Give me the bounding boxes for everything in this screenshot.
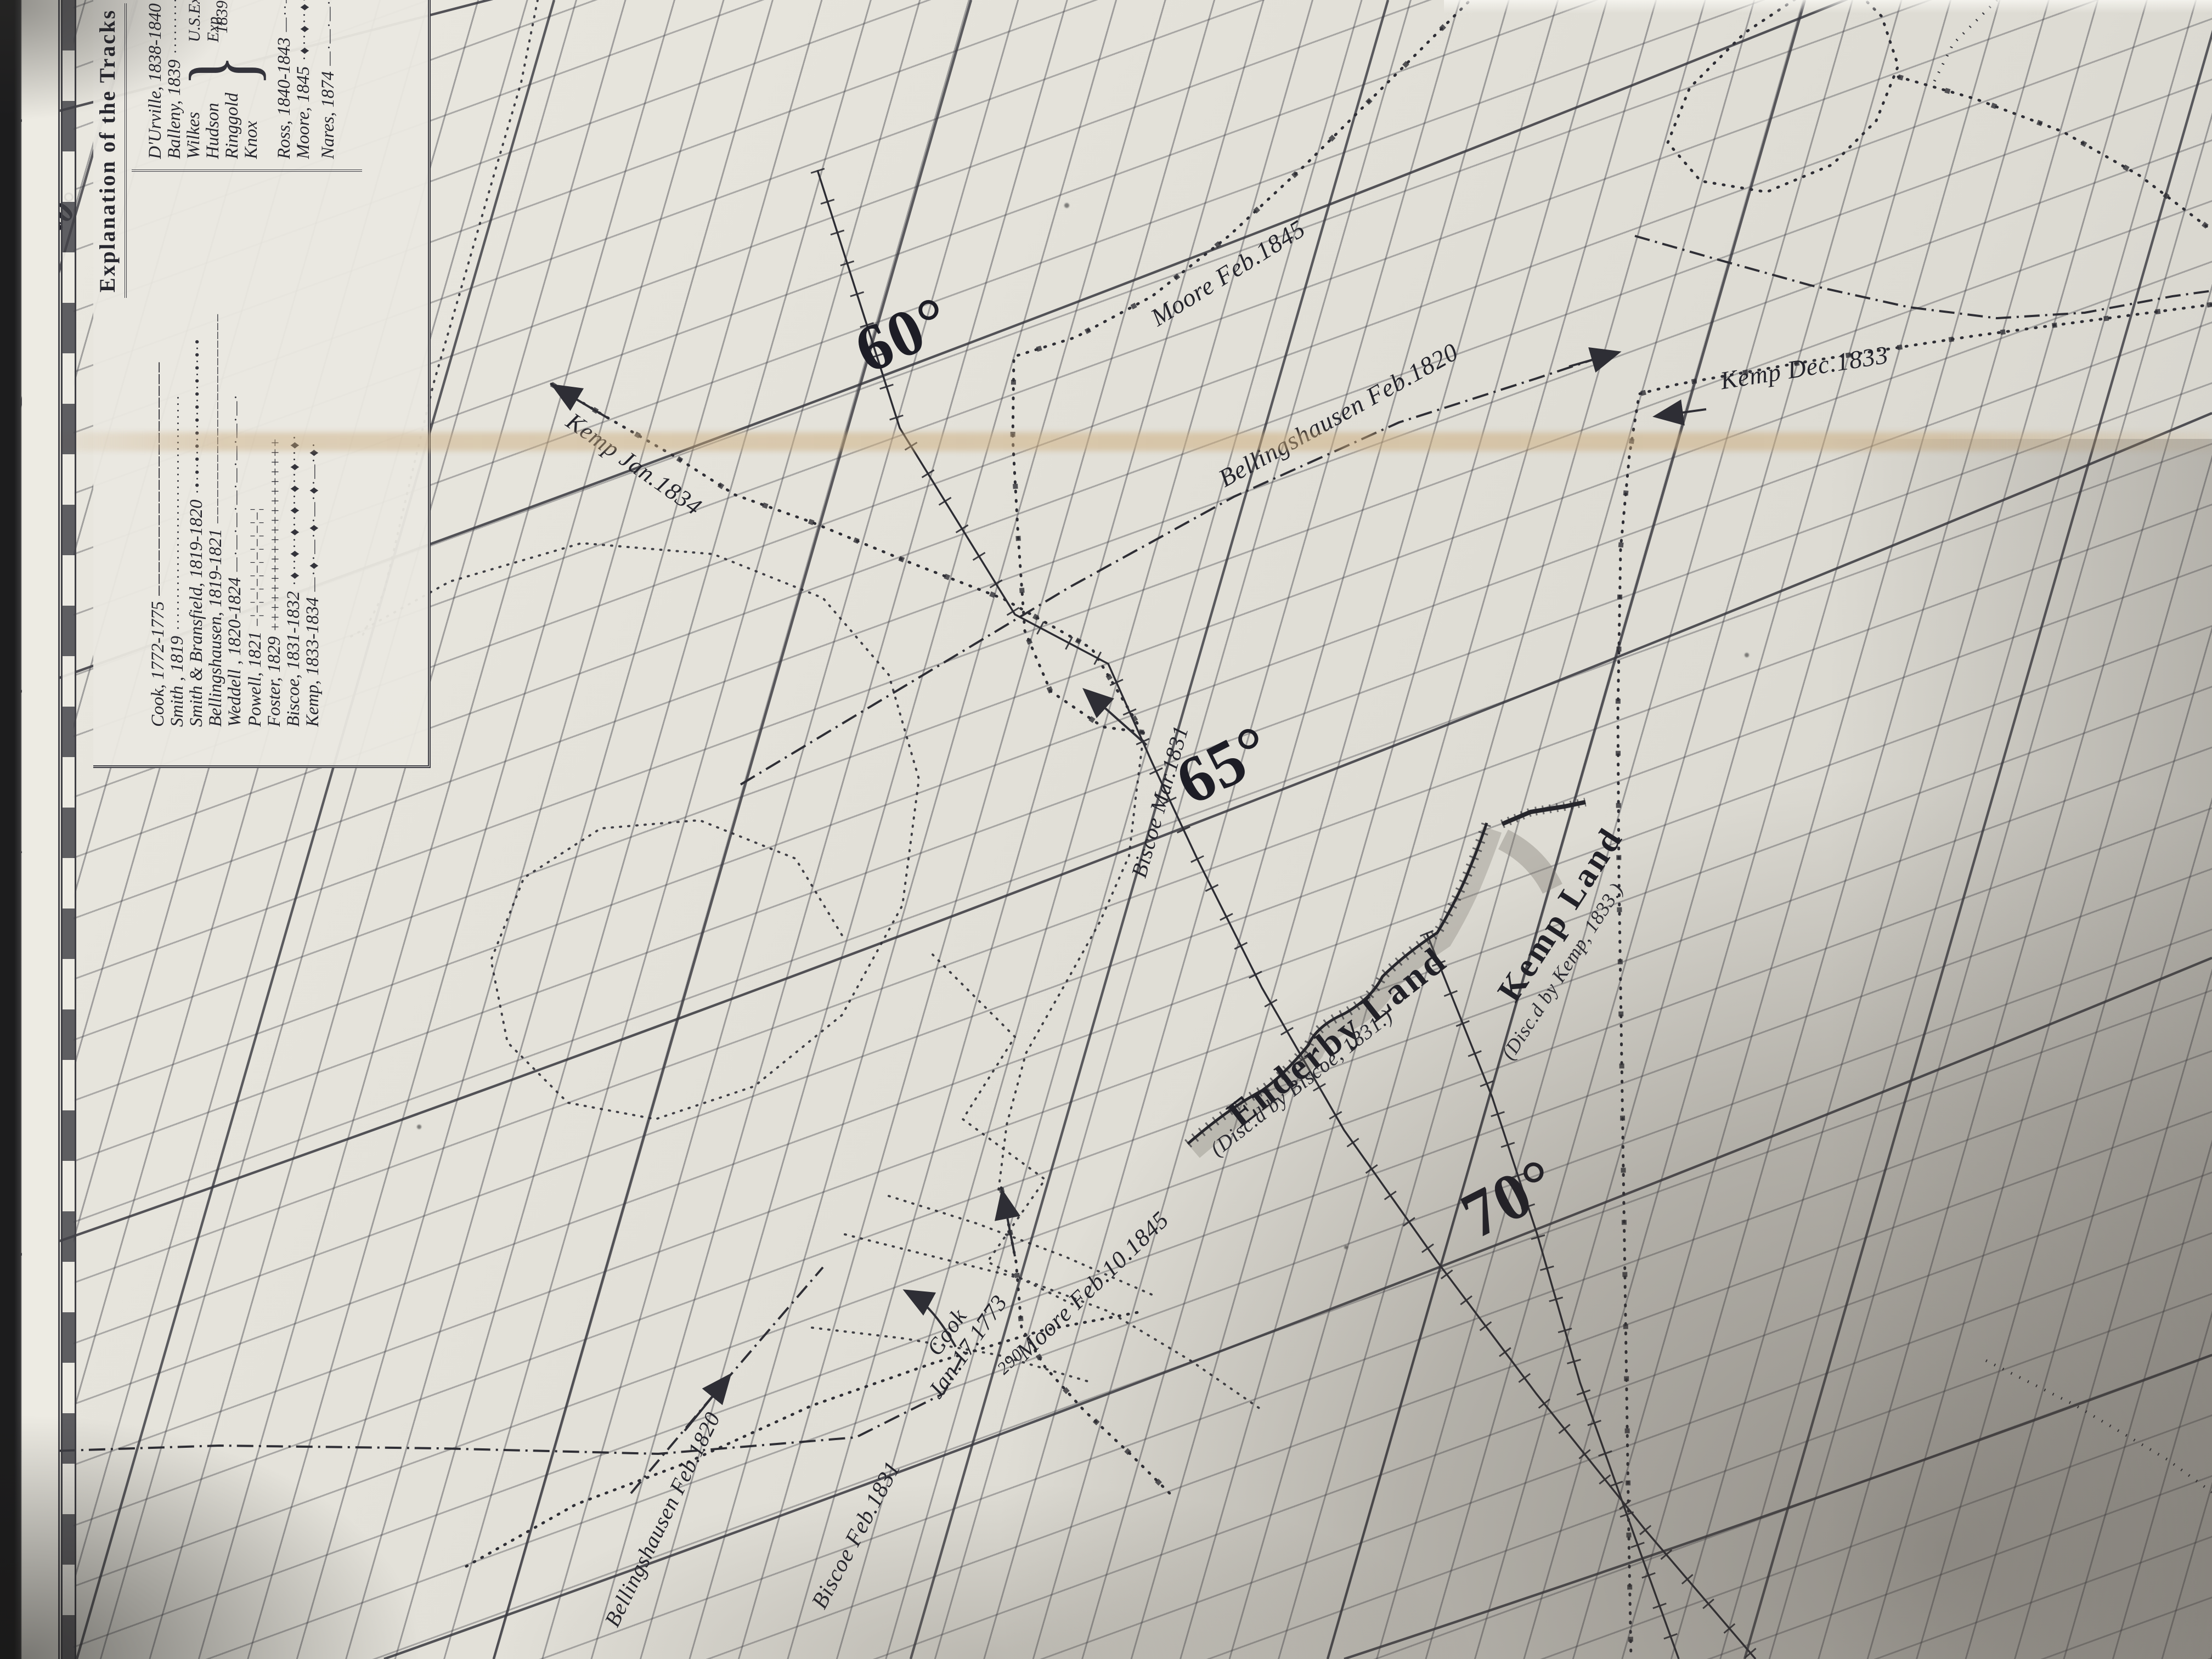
legend-entry-ross: Ross, 1840-1843—··—··—··— [274,0,294,159]
legend-name: Kemp, 1833-1834 [303,597,323,727]
legend-name: Smith & Bransfield, 1819-1820 [187,500,206,727]
track-bellingshausen-1820-upper [741,353,1615,785]
legend-name: Weddell , 1820-1824 [225,577,245,727]
legend-entry-cook: Cook, 1772-1775──────────────────── [148,178,168,727]
legend-entry-smith-bransfield: Smith & Bransfield, 1819-1820·•·•·•·•·•·… [187,178,206,727]
legend-column-divider [132,170,362,172]
antarctic-track-map-photo: Moore Feb.1845 Bellingshausen Feb.1820 K… [0,0,2212,1659]
legend-name: Foster, 1829 [264,636,284,727]
legend-line-sample: ················ [167,0,184,60]
legend-name: Knox [241,121,261,159]
legend-name: Cook, 1772-1775 [148,601,168,727]
paper-speck [1064,203,1069,208]
legend-line-sample: ·•·•·•·•·•·•·•·•·•·•·•·• [189,178,206,500]
legend-entry-nares: Nares, 1874—·—·—·—· [318,0,338,159]
paper-speck [417,1125,421,1129]
legend-line-sample: —·—·—·—·—·—·—·—· [228,178,244,577]
border-degree-band [61,0,76,1659]
legend-group-brace: } [169,55,276,86]
legend-entry-kemp: Kemp, 1833-1834—·♦·—·♦·—·♦·—·♦· [303,178,323,727]
legend-entry-wilkes: Wilkes [184,77,204,159]
legend-name: Ringgold [222,93,242,159]
track-kemp-dec-1833 [1618,304,2212,1659]
legend-entry-smith: Smith , 1819····························… [167,178,187,727]
legend-line-sample: —··—··—··— [277,0,294,37]
legend-name: Wilkes [184,112,204,159]
legend-name: Bellingshausen, 1819-1821 [206,529,225,727]
legend-name: Biscoe, 1831-1832 [284,591,303,727]
photo-left-edge [0,0,22,1659]
legend-name: Smith , 1819 [167,636,187,727]
legend-entry-moore: Moore, 1845·♦··♦··♦·· [294,0,313,159]
track-cook-1773 [0,1293,966,1454]
legend-entry-ringgold: Ringgold [222,77,242,159]
legend-line-sample: ················ [148,0,165,3]
paper-speck [1745,653,1749,657]
track-biscoe-loops [351,0,1262,1410]
legend-line-sample: ·♦··♦··♦··♦··♦··♦··♦· [286,178,303,591]
paper-fold-crease [0,432,2212,451]
legend-entry-weddell: Weddell , 1820-1824—·—·—·—·—·—·—·—· [225,178,245,727]
neat-line [58,0,60,1659]
legend-line-sample: –––––––––––––––––––––––– [208,178,225,529]
legend-name: Moore, 1845 [294,66,313,159]
legend-line-sample: —·—·—·—· [321,0,337,71]
track-nares-tickline-2 [1426,933,1679,1659]
legend-line-sample: ──────────────────── [151,178,167,601]
legend-line-sample: ····································· [170,178,187,636]
legend-title: Explanation of the Tracks [94,3,127,298]
legend-name: Ross, 1840-1843 [274,37,294,159]
track-biscoe-mar-arrow [1087,692,1147,745]
paper-speck [1344,1245,1348,1249]
legend-entry-knox: Knox [241,77,261,159]
legend-entry-durville: D'Urville, 1838-1840················ [145,0,165,159]
legend-line-sample: ·♦··♦··♦·· [296,0,313,66]
legend-entry-powell: Powell, 1821–¦–¦–¦–¦–¦–¦–¦–¦–¦ [245,178,265,727]
legend-name: Powell, 1821 [245,631,265,727]
map-margin [22,0,58,1659]
legend-entry-bellingshausen: Bellingshausen, 1819-1821–––––––––––––––… [206,178,225,727]
legend-name: D'Urville, 1838-1840 [145,3,165,159]
legend-name: Hudson [203,103,223,159]
legend-panel: Explanation of the Tracks Cook, 1772-177… [93,0,428,768]
legend-name: Nares, 1874 [318,71,338,159]
track-bellingshausen-1820-lower [466,1267,1144,1566]
legend-line-sample: –¦–¦–¦–¦–¦–¦–¦–¦–¦ [248,178,264,631]
legend-entry-foster: Foster, 1829++++++++++++++++++++ [264,178,284,727]
legend-box: Explanation of the Tracks Cook, 1772-177… [93,0,431,768]
track-topright-loops [1635,0,2212,1492]
legend-line-sample: —·♦·—·♦·—·♦·—·♦· [306,178,322,597]
legend-line-sample: ++++++++++++++++++++ [267,178,284,636]
legend-group-label-2: 1839-1842 [213,0,232,33]
legend-entry-biscoe: Biscoe, 1831-1832·♦··♦··♦··♦··♦··♦··♦· [284,178,303,727]
legend-entry-hudson: Hudson [203,77,223,159]
